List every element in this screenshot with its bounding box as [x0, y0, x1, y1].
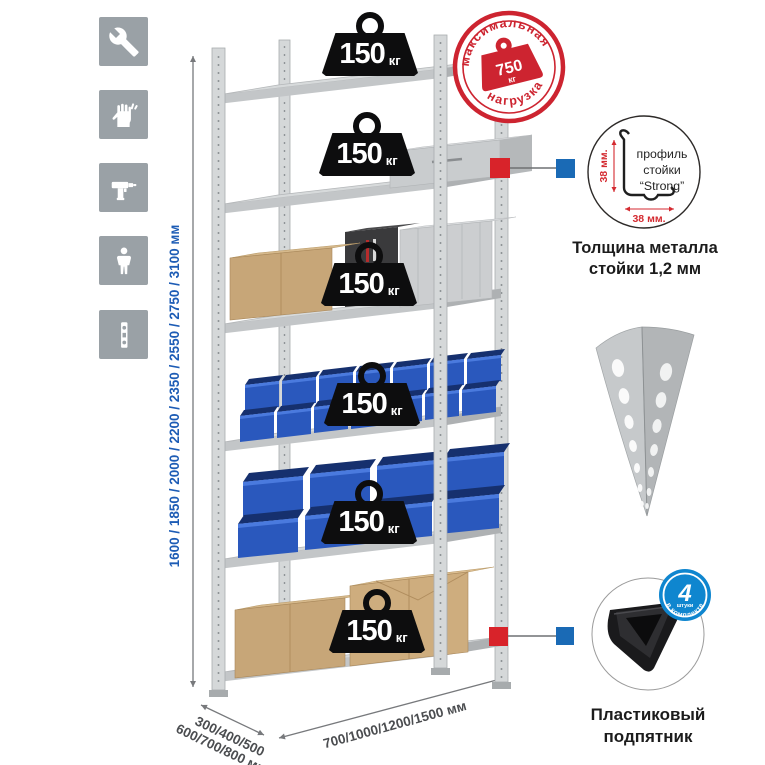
weight-value: 150	[338, 270, 383, 299]
profile-label: профиль стойки “Strong”	[637, 147, 688, 193]
profile-dim-vertical-label: 38 мм.	[598, 149, 610, 182]
weight-badge-shelf4: 150кг	[324, 362, 420, 426]
front-right-foot	[431, 668, 450, 675]
weight-value: 150	[336, 140, 381, 169]
profile-label-line3: “Strong”	[640, 179, 684, 193]
badge-small-text: штуки	[677, 603, 694, 609]
corner-post-illustration	[584, 306, 714, 538]
profile-caption-line1: Толщина металла	[561, 238, 729, 259]
red-marker-bottom	[489, 627, 508, 646]
blue-marker-bottom	[556, 627, 574, 645]
weight-badge-shelf6: 150кг	[329, 589, 425, 653]
weight-body: 150кг	[322, 33, 418, 76]
front-left-foot	[209, 690, 228, 697]
kit-quantity-badge: 4 штуки в комплекте	[657, 567, 713, 623]
product-infographic-page: { "left_icons": [ {"name": "wrench"}, {"…	[0, 0, 765, 765]
weight-value: 150	[341, 390, 386, 419]
foot-callout-connector	[489, 627, 574, 646]
weight-badge-shelf3: 150кг	[321, 242, 417, 306]
weight-unit: кг	[389, 53, 401, 68]
weight-value: 150	[339, 40, 384, 69]
max-load-stamp: максимальная нагрузка 750 кг	[444, 2, 575, 133]
weight-body: 150кг	[321, 501, 417, 544]
width-dimension-label: 700/1000/1200/1500 мм	[322, 698, 468, 751]
profile-caption-line2: стойки 1,2 мм	[561, 259, 729, 280]
post-right-face	[642, 327, 694, 516]
weight-badge-shelf1: 150кг	[322, 12, 418, 76]
foot-caption-line2: подпятник	[568, 726, 728, 748]
weight-unit: кг	[386, 153, 398, 168]
weight-body: 150кг	[321, 263, 417, 306]
profile-detail-circle: 38 мм. 38 мм. профиль стойки “Strong”	[584, 112, 704, 232]
profile-callout-connector	[490, 158, 575, 178]
profile-caption: Толщина металла стойки 1,2 мм	[561, 238, 729, 280]
weight-unit: кг	[388, 521, 400, 536]
weight-value: 150	[346, 617, 391, 646]
profile-label-line1: профиль	[637, 147, 688, 161]
weight-body: 150кг	[324, 383, 420, 426]
weight-body: 150кг	[319, 133, 415, 176]
profile-dim-horizontal-label: 38 мм.	[632, 213, 665, 225]
weight-body: 150кг	[329, 610, 425, 653]
weight-unit: кг	[391, 403, 403, 418]
weight-value: 150	[338, 508, 383, 537]
foot-caption: Пластиковый подпятник	[568, 704, 728, 748]
weight-unit: кг	[396, 630, 408, 645]
foot-caption-line1: Пластиковый	[568, 704, 728, 726]
weight-badge-shelf5: 150кг	[321, 480, 417, 544]
height-dimension-label: 1600 / 1850 / 2000 / 2200 / 2350 / 2550 …	[167, 225, 182, 568]
front-right-post	[434, 35, 447, 668]
blue-marker-top	[556, 159, 575, 178]
back-right-foot	[492, 682, 511, 689]
profile-label-line2: стойки	[643, 163, 681, 177]
weight-badge-shelf2: 150кг	[319, 112, 415, 176]
weight-unit: кг	[388, 283, 400, 298]
red-marker-top	[490, 158, 510, 178]
